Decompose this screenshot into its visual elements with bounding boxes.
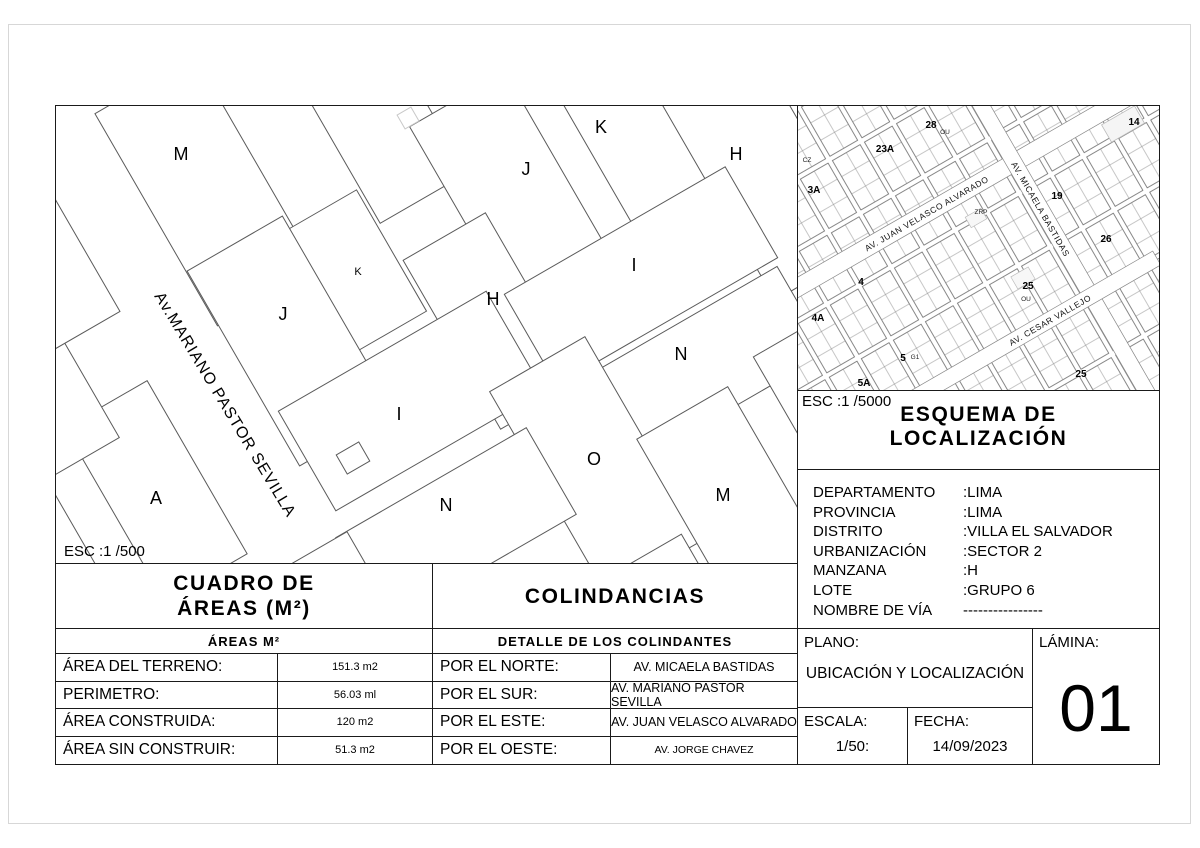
colindancias-subtitle: DETALLE DE LOS COLINDANTES: [433, 629, 797, 654]
area-row-label: ÁREA CONSTRUIDA:: [56, 709, 278, 736]
plano-label: PLANO:: [798, 629, 1032, 651]
areas-table: CUADRO DE ÁREAS (M²) ÁREAS M² ÁREA DEL T…: [56, 564, 433, 764]
area-row-label: ÁREA DEL TERRENO:: [56, 654, 278, 681]
location-value: ----------------: [963, 601, 1043, 621]
block-number: 3A: [808, 185, 821, 196]
location-row: DEPARTAMENTO :LIMA: [813, 483, 1159, 503]
city-blocks: [56, 106, 798, 564]
block-number: 25: [1022, 281, 1034, 292]
block-label: I: [396, 404, 401, 424]
colindancia-label: POR EL OESTE:: [433, 737, 611, 765]
table-row: ÁREA DEL TERRENO: 151.3 m2: [56, 654, 432, 682]
location-row: MANZANA :H: [813, 561, 1159, 581]
block-label: N: [675, 344, 688, 364]
lamina-label: LÁMINA:: [1033, 629, 1159, 651]
block-label: N: [440, 495, 453, 515]
colindancia-value: AV. JORGE CHAVEZ: [611, 737, 797, 765]
escala-value: 1/50:: [798, 738, 907, 755]
location-data-box: DEPARTAMENTO :LIMA PROVINCIA :LIMA DISTR…: [798, 470, 1159, 629]
title-block: PLANO: UBICACIÓN Y LOCALIZACIÓN ESCALA: …: [798, 629, 1159, 764]
plan-sheet: M J K H K J H I N I O N M A Av.MARIANO P…: [0, 0, 1200, 848]
block-number: 25: [1075, 369, 1087, 380]
plano-cell: PLANO: UBICACIÓN Y LOCALIZACIÓN: [798, 629, 1033, 708]
colindancias-table: COLINDANCIAS DETALLE DE LOS COLINDANTES …: [433, 564, 798, 764]
fecha-label: FECHA:: [908, 708, 1032, 730]
location-label: DISTRITO: [813, 522, 963, 542]
block-number: 14: [1128, 117, 1140, 128]
location-value: :GRUPO 6: [963, 581, 1035, 601]
table-row: POR EL ESTE: AV. JUAN VELASCO ALVARADO: [433, 709, 797, 737]
lamina-cell: LÁMINA: 01: [1033, 629, 1159, 764]
table-row: PERIMETRO: 56.03 ml: [56, 682, 432, 710]
location-value: :LIMA: [963, 503, 1002, 523]
areas-title-line1: CUADRO DE: [173, 571, 315, 596]
block-label: J: [279, 304, 288, 324]
location-label: LOTE: [813, 581, 963, 601]
location-row: NOMBRE DE VÍA ----------------: [813, 601, 1159, 621]
table-row: ÁREA SIN CONSTRUIR: 51.3 m2: [56, 737, 432, 765]
colindancia-value: AV. MICAELA BASTIDAS: [611, 654, 797, 681]
location-value: :H: [963, 561, 978, 581]
colindancia-label: POR EL SUR:: [433, 682, 611, 709]
zone-code: G1: [911, 354, 920, 361]
location-label: NOMBRE DE VÍA: [813, 601, 963, 621]
block-number: 26: [1100, 234, 1112, 245]
table-row: ÁREA CONSTRUIDA: 120 m2: [56, 709, 432, 737]
site-plan-drawing: M J K H K J H I N I O N M A Av.MARIANO P…: [56, 106, 798, 564]
zone-code: OU: [940, 129, 950, 136]
block-label: J: [522, 159, 531, 179]
block-label: M: [716, 485, 731, 505]
colindancias-title: COLINDANCIAS: [525, 584, 705, 609]
escala-label: ESCALA:: [798, 708, 907, 730]
table-row: POR EL NORTE: AV. MICAELA BASTIDAS: [433, 654, 797, 682]
block-label: I: [631, 255, 636, 275]
drawing-frame: M J K H K J H I N I O N M A Av.MARIANO P…: [55, 105, 1160, 765]
location-label: URBANIZACIÓN: [813, 542, 963, 562]
block-number: 4A: [812, 313, 825, 324]
plano-value: UBICACIÓN Y LOCALIZACIÓN: [798, 665, 1032, 683]
block-label: O: [587, 449, 601, 469]
lamina-number: 01: [1033, 675, 1159, 741]
block-label: K: [595, 117, 607, 137]
block-number: 5A: [858, 378, 871, 389]
area-row-value: 56.03 ml: [278, 682, 432, 709]
colindancia-label: POR EL ESTE:: [433, 709, 611, 736]
area-row-value: 151.3 m2: [278, 654, 432, 681]
location-row: LOTE :GRUPO 6: [813, 581, 1159, 601]
esquema-title-box: ESC :1 /5000 ESQUEMA DE LOCALIZACIÓN: [798, 391, 1159, 470]
block-label: K: [354, 266, 362, 278]
block-label: H: [730, 144, 743, 164]
block-label: H: [487, 289, 500, 309]
location-value: :LIMA: [963, 483, 1002, 503]
fecha-cell: FECHA: 14/09/2023: [908, 708, 1033, 764]
area-row-value: 120 m2: [278, 709, 432, 736]
esquema-title-line2: LOCALIZACIÓN: [798, 427, 1159, 451]
colindancia-label: POR EL NORTE:: [433, 654, 611, 681]
zone-code: ZRP: [975, 209, 988, 216]
table-row: POR EL OESTE: AV. JORGE CHAVEZ: [433, 737, 797, 765]
block-number: 23A: [876, 144, 894, 155]
colindancia-value: AV. MARIANO PASTOR SEVILLA: [611, 682, 797, 709]
areas-subtitle: ÁREAS M²: [56, 629, 432, 654]
block-number: 28: [925, 120, 937, 131]
plan-scale-label: ESC :1 /500: [64, 543, 145, 560]
location-row: PROVINCIA :LIMA: [813, 503, 1159, 523]
block-label: A: [150, 488, 162, 508]
esquema-scale-label: ESC :1 /5000: [802, 393, 891, 410]
block-number: 19: [1051, 191, 1063, 202]
fecha-value: 14/09/2023: [908, 738, 1032, 755]
block-number: 5: [900, 353, 906, 364]
colindancia-value: AV. JUAN VELASCO ALVARADO: [611, 709, 797, 736]
escala-cell: ESCALA: 1/50:: [798, 708, 908, 764]
location-value: :VILLA EL SALVADOR: [963, 522, 1113, 542]
right-panel: AV. JUAN VELASCO ALVARADO AV. MICAELA BA…: [798, 106, 1159, 764]
zone-code: OU: [1021, 296, 1031, 303]
area-row-label: PERIMETRO:: [56, 682, 278, 709]
areas-title-line2: ÁREAS (M²): [177, 596, 311, 621]
block-label: M: [174, 144, 189, 164]
table-row: POR EL SUR: AV. MARIANO PASTOR SEVILLA: [433, 682, 797, 710]
location-value: :SECTOR 2: [963, 542, 1042, 562]
esquema-map-drawing: AV. JUAN VELASCO ALVARADO AV. MICAELA BA…: [798, 106, 1159, 391]
location-row: URBANIZACIÓN :SECTOR 2: [813, 542, 1159, 562]
location-label: PROVINCIA: [813, 503, 963, 523]
site-plan: M J K H K J H I N I O N M A Av.MARIANO P…: [56, 106, 798, 564]
zone-code: CZ: [803, 157, 812, 164]
esquema-map: AV. JUAN VELASCO ALVARADO AV. MICAELA BA…: [798, 106, 1159, 391]
area-row-label: ÁREA SIN CONSTRUIR:: [56, 737, 278, 765]
area-row-value: 51.3 m2: [278, 737, 432, 765]
location-label: DEPARTAMENTO: [813, 483, 963, 503]
block-number: 4: [858, 277, 864, 288]
location-row: DISTRITO :VILLA EL SALVADOR: [813, 522, 1159, 542]
location-label: MANZANA: [813, 561, 963, 581]
